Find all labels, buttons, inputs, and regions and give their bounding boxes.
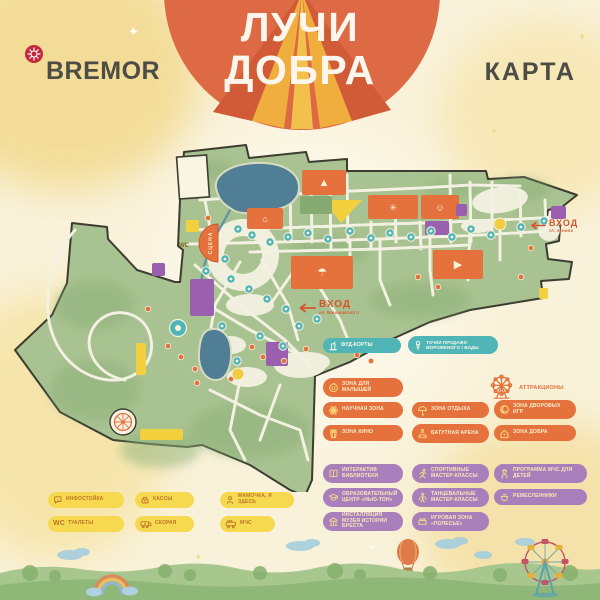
legend-zone-cinema: ЗОНА КИНО [323,425,403,441]
map-cutout-plot [177,155,210,199]
brand-logo: BREMOR [24,44,160,86]
legend-zone-yard-games: ЗОНА ДВОРОВЫХ ИГР [494,400,576,419]
bremor-star-icon [24,44,44,74]
entrance-street: УЛ. ЛЕВАНЕВСКОГО [319,311,359,315]
legend-label: ОБРАЗОВАТЕЛЬНЫЙ ЦЕНТР «НЬЮ-ТОН» [342,492,398,504]
sparkle-icon: ✦ [195,553,202,562]
map-ferris-wheel-icon [110,409,136,435]
ferris-wheel-icon [488,374,515,401]
svg-text:▲: ▲ [319,177,330,189]
house-heart-icon [499,428,510,439]
svg-text:✳: ✳ [389,203,397,213]
legend-ice-cream-points: ТОЧКИ ПРОДАЖИ МОРОЖЕНОГО / ВОДЫ [408,336,498,354]
stage-label: СЦЕНА [208,232,214,255]
pond-upper [216,163,299,213]
hot-air-balloon [397,539,419,573]
legend-lost-child-point: МАМОЧКА, Я ЗДЕСЬ [220,492,294,508]
legend-label: АТТРАКЦИОНЫ [519,385,564,391]
page-title: КАРТА [485,58,576,87]
ball-icon [499,404,510,415]
legend-cash-desks: КАССЫ [135,492,194,508]
legend-ambulance: СКОРАЯ [135,516,194,532]
runner-icon [417,468,428,479]
legend-sport-workshops: СПОРТИВНЫЕ МАСТЕР-КЛАССЫ [412,464,489,483]
svg-text:▶: ▶ [454,259,463,271]
legend-mchs: МЧС [220,516,275,532]
legend-label: ТОЧКИ ПРОДАЖИ МОРОЖЕНОГО / ВОДЫ [426,340,493,350]
legend-label: ТАНЦЕВАЛЬНЫЕ МАСТЕР-КЛАССЫ [431,492,484,504]
legend-education-center: ОБРАЗОВАТЕЛЬНЫЙ ЦЕНТР «НЬЮ-ТОН» [323,488,403,507]
legend-label: КАССЫ [153,497,172,503]
legend-label: ИНТЕРАКТИВ БИБЛИОТЕКИ [342,468,398,480]
legend-label: ЗОНА ДВОРОВЫХ ИГР [513,404,571,416]
pottery-icon [499,492,510,503]
legend-label: ЗОНА ДОБРА [513,430,548,436]
legend-zone-rest: ЗОНА ОТДЫХА [412,402,489,418]
event-map-poster: { "header": { "brand": "BREMOR", "title_… [0,0,600,600]
legend-infodesk: ИНФОСТОЙКА [48,492,124,508]
trampoline-icon [417,428,428,439]
toy-brick-icon [417,516,428,527]
legend-label: МАМОЧКА, Я ЗДЕСЬ [238,494,289,506]
arrow-left-icon [529,221,546,230]
ambulance-icon [140,519,152,529]
legend-mchs-kids-program: ПРОГРАММА МЧС ДЛЯ ДЕТЕЙ [494,464,587,483]
museum-icon [328,516,339,527]
legend-label: МЧС [240,521,252,527]
legend-library-interactives: ИНТЕРАКТИВ БИБЛИОТЕКИ [323,464,403,483]
legend-label: СПОРТИВНЫЕ МАСТЕР-КЛАССЫ [431,468,484,480]
legend-label: ЗОНА ОТДЫХА [431,407,470,413]
map-wc-label: WC [179,243,190,249]
info-icon [53,495,63,505]
entrance-street: УЛ. ЛЕНИНА [549,229,578,233]
legend-label: ПРОГРАММА МЧС ДЛЯ ДЕТЕЙ [513,468,582,480]
legend-label: ЗОНА ДЛЯ МАЛЫШЕЙ [342,382,398,394]
legend-zone-science: НАУЧНАЯ ЗОНА [323,402,403,418]
entrance-label: ВХОД [549,219,578,228]
legend-attractions: АТТРАКЦИОНЫ [488,374,564,401]
legend-label: НАУЧНАЯ ЗОНА [342,407,384,413]
entrance-levanevskogo: ВХОД УЛ. ЛЕВАНЕВСКОГО [297,300,359,315]
arrow-left-icon [297,303,316,313]
legend-zone-kids: ЗОНА ДЛЯ МАЛЫШЕЙ [323,378,403,397]
svg-text:⌂: ⌂ [262,214,267,224]
firefighter-icon [499,468,510,479]
legend-polesie-play-zone: ИГРОВАЯ ЗОНА «ПОЛЕСЬЕ» [412,512,489,531]
legend-label: ФУД-КОРТЫ [341,343,373,349]
dancer-icon [417,492,428,503]
legend-label: БАТУТНАЯ АРЕНА [431,431,479,437]
legend-zone-goodness: ЗОНА ДОБРА [494,425,576,441]
entrance-lenina: ВХОД УЛ. ЛЕНИНА [529,219,578,233]
legend-label: ТУАЛЕТЫ [68,521,93,527]
clouds [57,537,535,560]
entrance-label: ВХОД [319,300,359,310]
legend-craftsmen: РЕМЕСЛЕННИКИ [494,489,587,505]
education-icon [328,492,339,503]
ice-cream-icon [413,340,423,350]
atom-icon [328,405,339,416]
popcorn-icon [328,428,339,439]
legend-label: СКОРАЯ [155,521,177,527]
legend-food-courts: ФУД-КОРТЫ [323,338,401,353]
legend-zone-trampoline: БАТУТНАЯ АРЕНА [412,424,489,443]
legend-brest-museum-installation: ИНСТАЛЛЯЦИЯ МУЗЕЯ ИСТОРИИ БРЕСТА [323,512,403,531]
fire-truck-icon [225,519,237,529]
wc-icon: WC [53,520,65,528]
legend-label: ИНФОСТОЙКА [66,497,103,503]
svg-text:☂: ☂ [317,267,327,279]
legend-label: РЕМЕСЛЕННИКИ [513,494,557,500]
lost-child-icon [225,495,235,505]
sparkle-icon: ✦ [370,544,375,551]
legend-dance-workshops: ТАНЦЕВАЛЬНЫЕ МАСТЕР-КЛАССЫ [412,488,489,507]
svg-text:☺: ☺ [435,203,444,213]
legend-label: ЗОНА КИНО [342,430,373,436]
legend-label: ИГРОВАЯ ЗОНА «ПОЛЕСЬЕ» [431,516,484,528]
brand-name: BREMOR [46,57,160,86]
book-icon [328,468,339,479]
food-court-icon [328,341,338,351]
umbrella-icon [417,405,428,416]
bottom-decoration: ✦ ✦ [0,535,600,600]
legend-label: ИНСТАЛЛЯЦИЯ МУЗЕЯ ИСТОРИИ БРЕСТА [342,513,398,530]
cash-desk-icon [140,495,150,505]
baby-icon [328,382,339,393]
event-title-line1: ЛУЧИ [0,6,600,49]
pond-lower [199,329,231,380]
legend-toilets: WC ТУАЛЕТЫ [48,516,124,532]
